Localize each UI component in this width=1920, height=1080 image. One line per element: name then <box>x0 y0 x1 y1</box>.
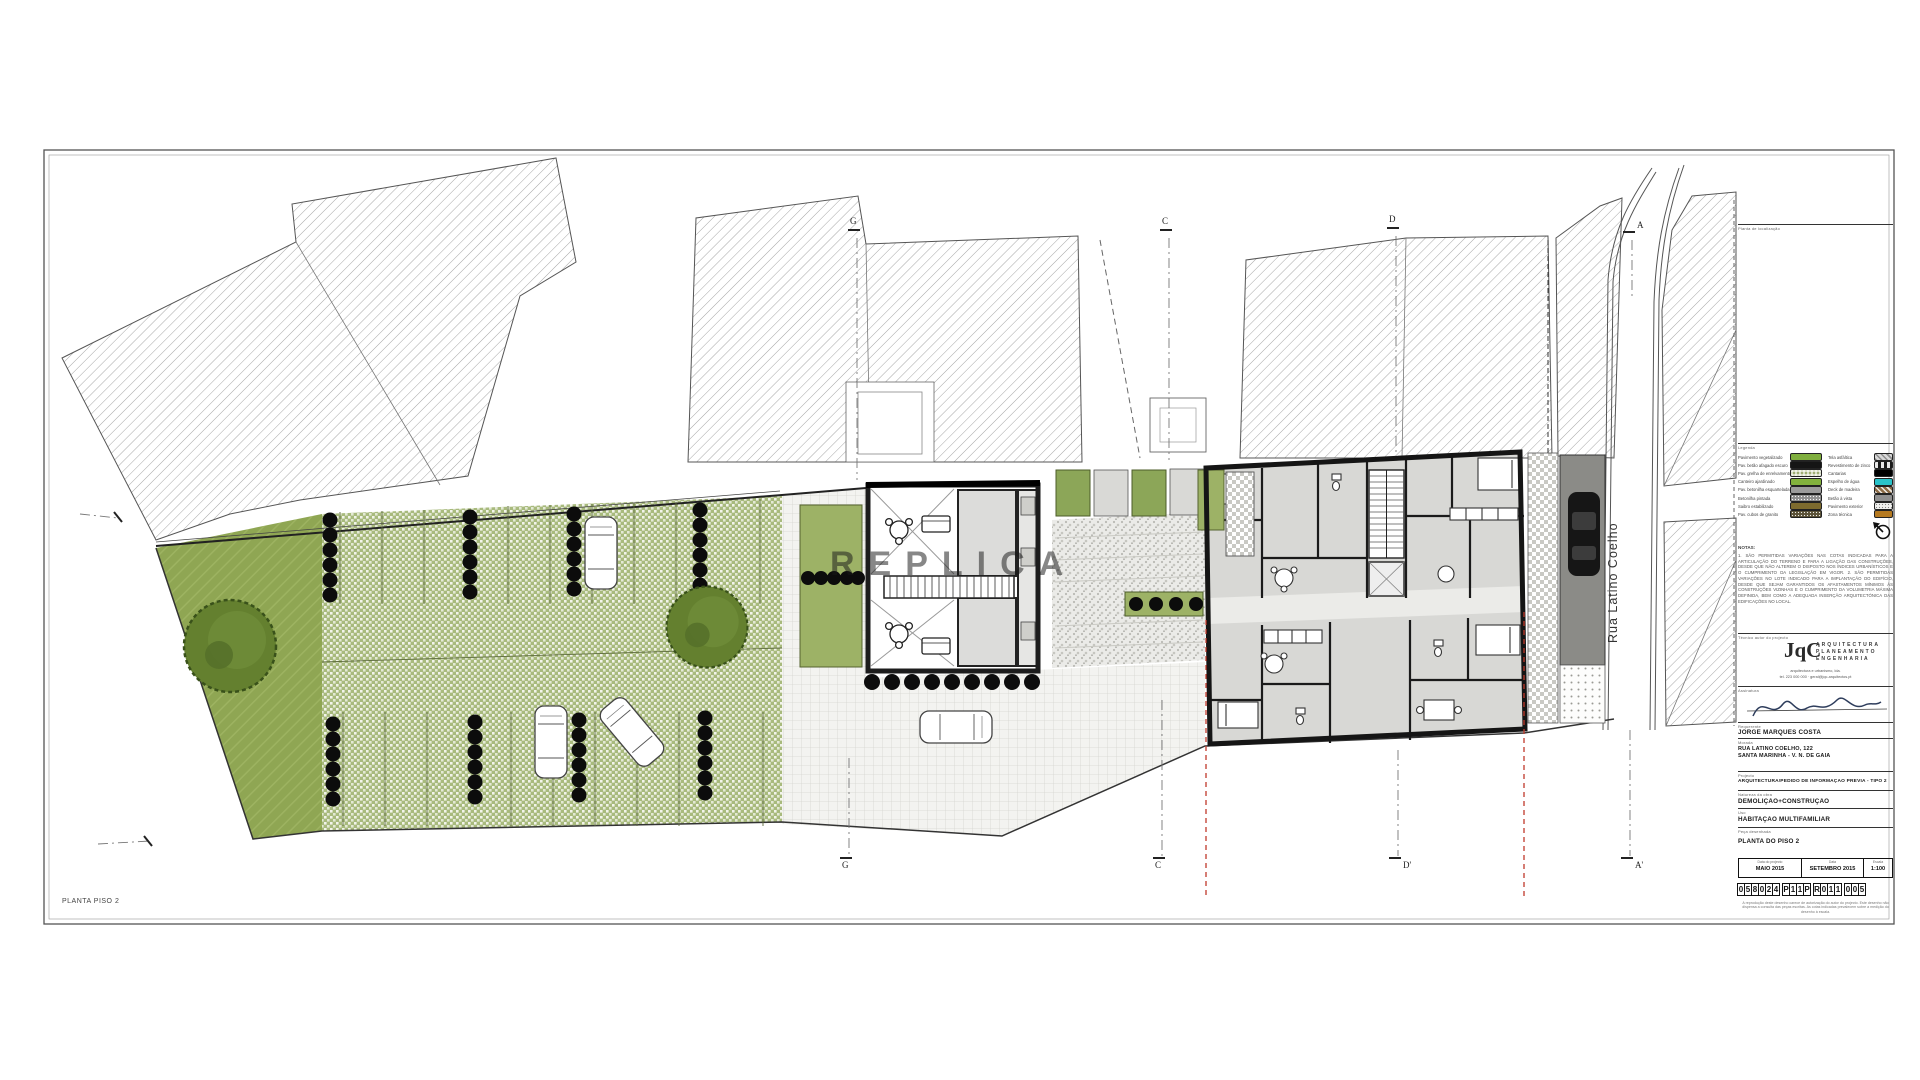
road-car <box>920 711 992 743</box>
site-plan-drawing <box>0 0 1920 1080</box>
legend-label: Pav. betonilha esquartelada <box>1738 487 1790 492</box>
legend-swatch <box>1874 502 1893 510</box>
legend-swatch <box>1874 486 1893 494</box>
legend-label: Betão à vista <box>1828 496 1874 501</box>
signature <box>1745 690 1895 722</box>
legend-swatch <box>1874 510 1893 518</box>
grid-marker-bottom-d: D' <box>1403 860 1411 870</box>
trellis-paving <box>1226 472 1254 556</box>
work-address-line1: RUA LATINO COELHO, 122 <box>1738 746 1893 752</box>
process-digit: 5 <box>1858 883 1866 896</box>
scale-header: Escala <box>1873 860 1883 864</box>
process-group: R 0 1 1 <box>1814 883 1842 896</box>
legend-label: Pav. cubos de granito <box>1738 512 1790 517</box>
process-group: 0 0 5 <box>1845 883 1866 896</box>
fine-print: A reprodução deste desenho carece de aut… <box>1738 901 1893 914</box>
titleblock-divider <box>1738 633 1893 634</box>
section-label-piece: Peça desenhada <box>1738 829 1771 834</box>
section-label-legend: Legenda <box>1738 445 1755 450</box>
legend: Pavimento vegetalizado Tela asfáltica Pa… <box>1738 453 1893 519</box>
building-use: HABITAÇÃO MULTIFAMILIAR <box>1738 816 1893 823</box>
legend-label: Pav. betão afagado escuro <box>1738 463 1790 468</box>
legend-swatch <box>1874 461 1893 469</box>
work-address-line2: SANTA MARINHA - V. N. DE GAIA <box>1738 753 1893 759</box>
section-label-address: Morada <box>1738 740 1753 745</box>
titleblock-divider <box>1738 722 1893 723</box>
legend-swatch <box>1874 469 1893 477</box>
process-digit: P <box>1803 883 1811 896</box>
balcony-planter <box>1198 470 1224 530</box>
grid-marker-top-a: A <box>1637 220 1644 230</box>
grid-marker-bottom-c: C <box>1155 860 1161 870</box>
issue-date: SETEMBRO 2015 <box>1810 866 1856 872</box>
dates-table: Data do projecto MAIO 2015 Data SETEMBRO… <box>1738 858 1893 878</box>
legend-swatch <box>1874 478 1893 486</box>
east-strips <box>1528 453 1605 723</box>
legend-label: Revestimento de zinco <box>1828 463 1874 468</box>
parked-car <box>585 517 617 589</box>
architectural-plan-sheet: { "sheet": { "corner_label": "PLANTA PIS… <box>0 0 1920 1080</box>
firm-address-line: tel. 223 000 000 · geral@jqc-arquitectos… <box>1738 675 1893 679</box>
section-label-location: Planta de localização <box>1738 226 1780 231</box>
grid-marker-top-c: C <box>1162 216 1168 226</box>
work-nature: DEMOLIÇÃO+CONSTRUÇÃO <box>1738 798 1893 805</box>
titleblock-divider <box>1738 771 1893 772</box>
dotted-walk <box>1560 665 1605 723</box>
section-label-use: Uso <box>1738 810 1746 815</box>
street-name-label: Rua Latino Coelho <box>1606 518 1620 643</box>
parked-car <box>535 706 567 778</box>
process-digit: 4 <box>1772 883 1780 896</box>
section-label-project: Projecto <box>1738 773 1754 778</box>
legend-swatch <box>1790 461 1822 469</box>
grid-marker-bottom-g: G <box>842 860 849 870</box>
titleblock-divider <box>1738 738 1893 739</box>
titleblock-divider <box>1738 808 1893 809</box>
legend-label: Tela asfáltica <box>1828 455 1874 460</box>
process-digit: 1 <box>1834 883 1842 896</box>
titleblock-divider <box>1738 790 1893 791</box>
legend-swatch <box>1790 478 1822 486</box>
scale-cell: Escala 1:100 <box>1864 859 1892 877</box>
process-number-row: 0 5 8 0 2 4 P 1 1 P R 0 1 1 0 0 5 <box>1738 883 1869 896</box>
titleblock-divider <box>1738 443 1893 444</box>
grid-marker-top-d: D <box>1389 214 1396 224</box>
apartment-building <box>1198 452 1525 744</box>
drawing-title: PLANTA DO PISO 2 <box>1738 838 1893 845</box>
legend-label: Espelho de água <box>1828 479 1874 484</box>
legend-swatch <box>1790 486 1822 494</box>
legend-label: Pav. grelha de enrelvamento <box>1738 471 1790 476</box>
legend-label: Saibro estabilizado <box>1738 504 1790 509</box>
grid-marker-top-g: G <box>850 216 857 226</box>
client-name: JORGE MARQUES COSTA <box>1738 729 1893 736</box>
project-title: ARQUITECTURA/PEDIDO DE INFORMAÇÃO PRÉVIA… <box>1738 779 1893 784</box>
date-cell: Data do projecto MAIO 2015 <box>1739 859 1802 877</box>
firm-logo-line: PLANEAMENTO <box>1816 649 1880 656</box>
legend-label: Zona técnica <box>1828 512 1874 517</box>
date-cell: Data SETEMBRO 2015 <box>1802 859 1864 877</box>
drawing-scale: 1:100 <box>1871 866 1885 872</box>
legend-label: Pavimento vegetalizado <box>1738 455 1790 460</box>
firm-logo-text: ARQUITECTURA PLANEAMENTO ENGENHARIA <box>1816 642 1880 663</box>
legend-swatch <box>1790 453 1822 461</box>
firm-logo-line: ARQUITECTURA <box>1816 642 1880 649</box>
date-header: Data do projecto <box>1758 860 1783 864</box>
legend-swatch <box>1874 453 1893 461</box>
stair-core <box>1369 470 1404 596</box>
central-planter-strip <box>800 505 865 667</box>
firm-logo-line: ENGENHARIA <box>1816 656 1880 663</box>
titleblock-divider <box>1738 827 1893 828</box>
section-label-technician: Técnico autor do projecto <box>1738 635 1788 640</box>
legend-swatch <box>1790 502 1822 510</box>
legend-label: Deck de madeira <box>1828 487 1874 492</box>
project-date: MAIO 2015 <box>1756 866 1785 872</box>
titleblock-divider <box>1738 224 1893 225</box>
titleblock-divider <box>1738 686 1893 687</box>
notes-title: NOTAS: <box>1738 545 1755 550</box>
process-group: P 1 1 P <box>1783 883 1811 896</box>
process-group: 0 5 8 0 2 4 <box>1738 883 1780 896</box>
sheet-corner-label: PLANTA PISO 2 <box>62 898 119 905</box>
legend-swatch <box>1874 494 1893 502</box>
legend-label: Betonilha pintada <box>1738 496 1790 501</box>
bush-row-south <box>864 674 1040 690</box>
legend-label: Pavimento exterior <box>1828 504 1874 509</box>
north-arrow-icon <box>1872 521 1892 541</box>
notes-text: 1. SÃO PERMITIDAS VARIAÇÕES NAS COTAS IN… <box>1738 553 1893 604</box>
legend-swatch <box>1790 494 1822 502</box>
legend-swatch <box>1790 510 1822 518</box>
date-header: Data <box>1829 860 1836 864</box>
black-car <box>1568 492 1600 576</box>
section-label-nature: Natureza da obra <box>1738 792 1772 797</box>
legend-swatch <box>1790 469 1822 477</box>
grid-marker-bottom-a: A' <box>1635 860 1643 870</box>
legend-label: Canteiro ajardinado <box>1738 479 1790 484</box>
tree <box>184 600 276 692</box>
legend-label: Cantarias <box>1828 471 1874 476</box>
tree <box>667 587 748 668</box>
firm-address-line: arquitectura e urbanismo, lda. <box>1738 669 1893 673</box>
watermark: REPLICA <box>830 545 1077 584</box>
